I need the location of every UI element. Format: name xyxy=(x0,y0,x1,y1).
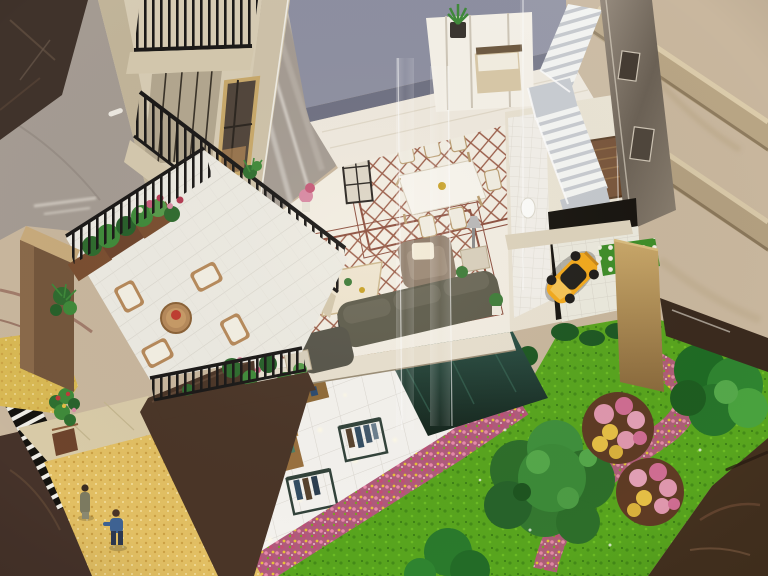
photo-canvas xyxy=(0,0,768,576)
scale-model-photo xyxy=(0,0,768,576)
lighting-vignette xyxy=(0,0,768,576)
